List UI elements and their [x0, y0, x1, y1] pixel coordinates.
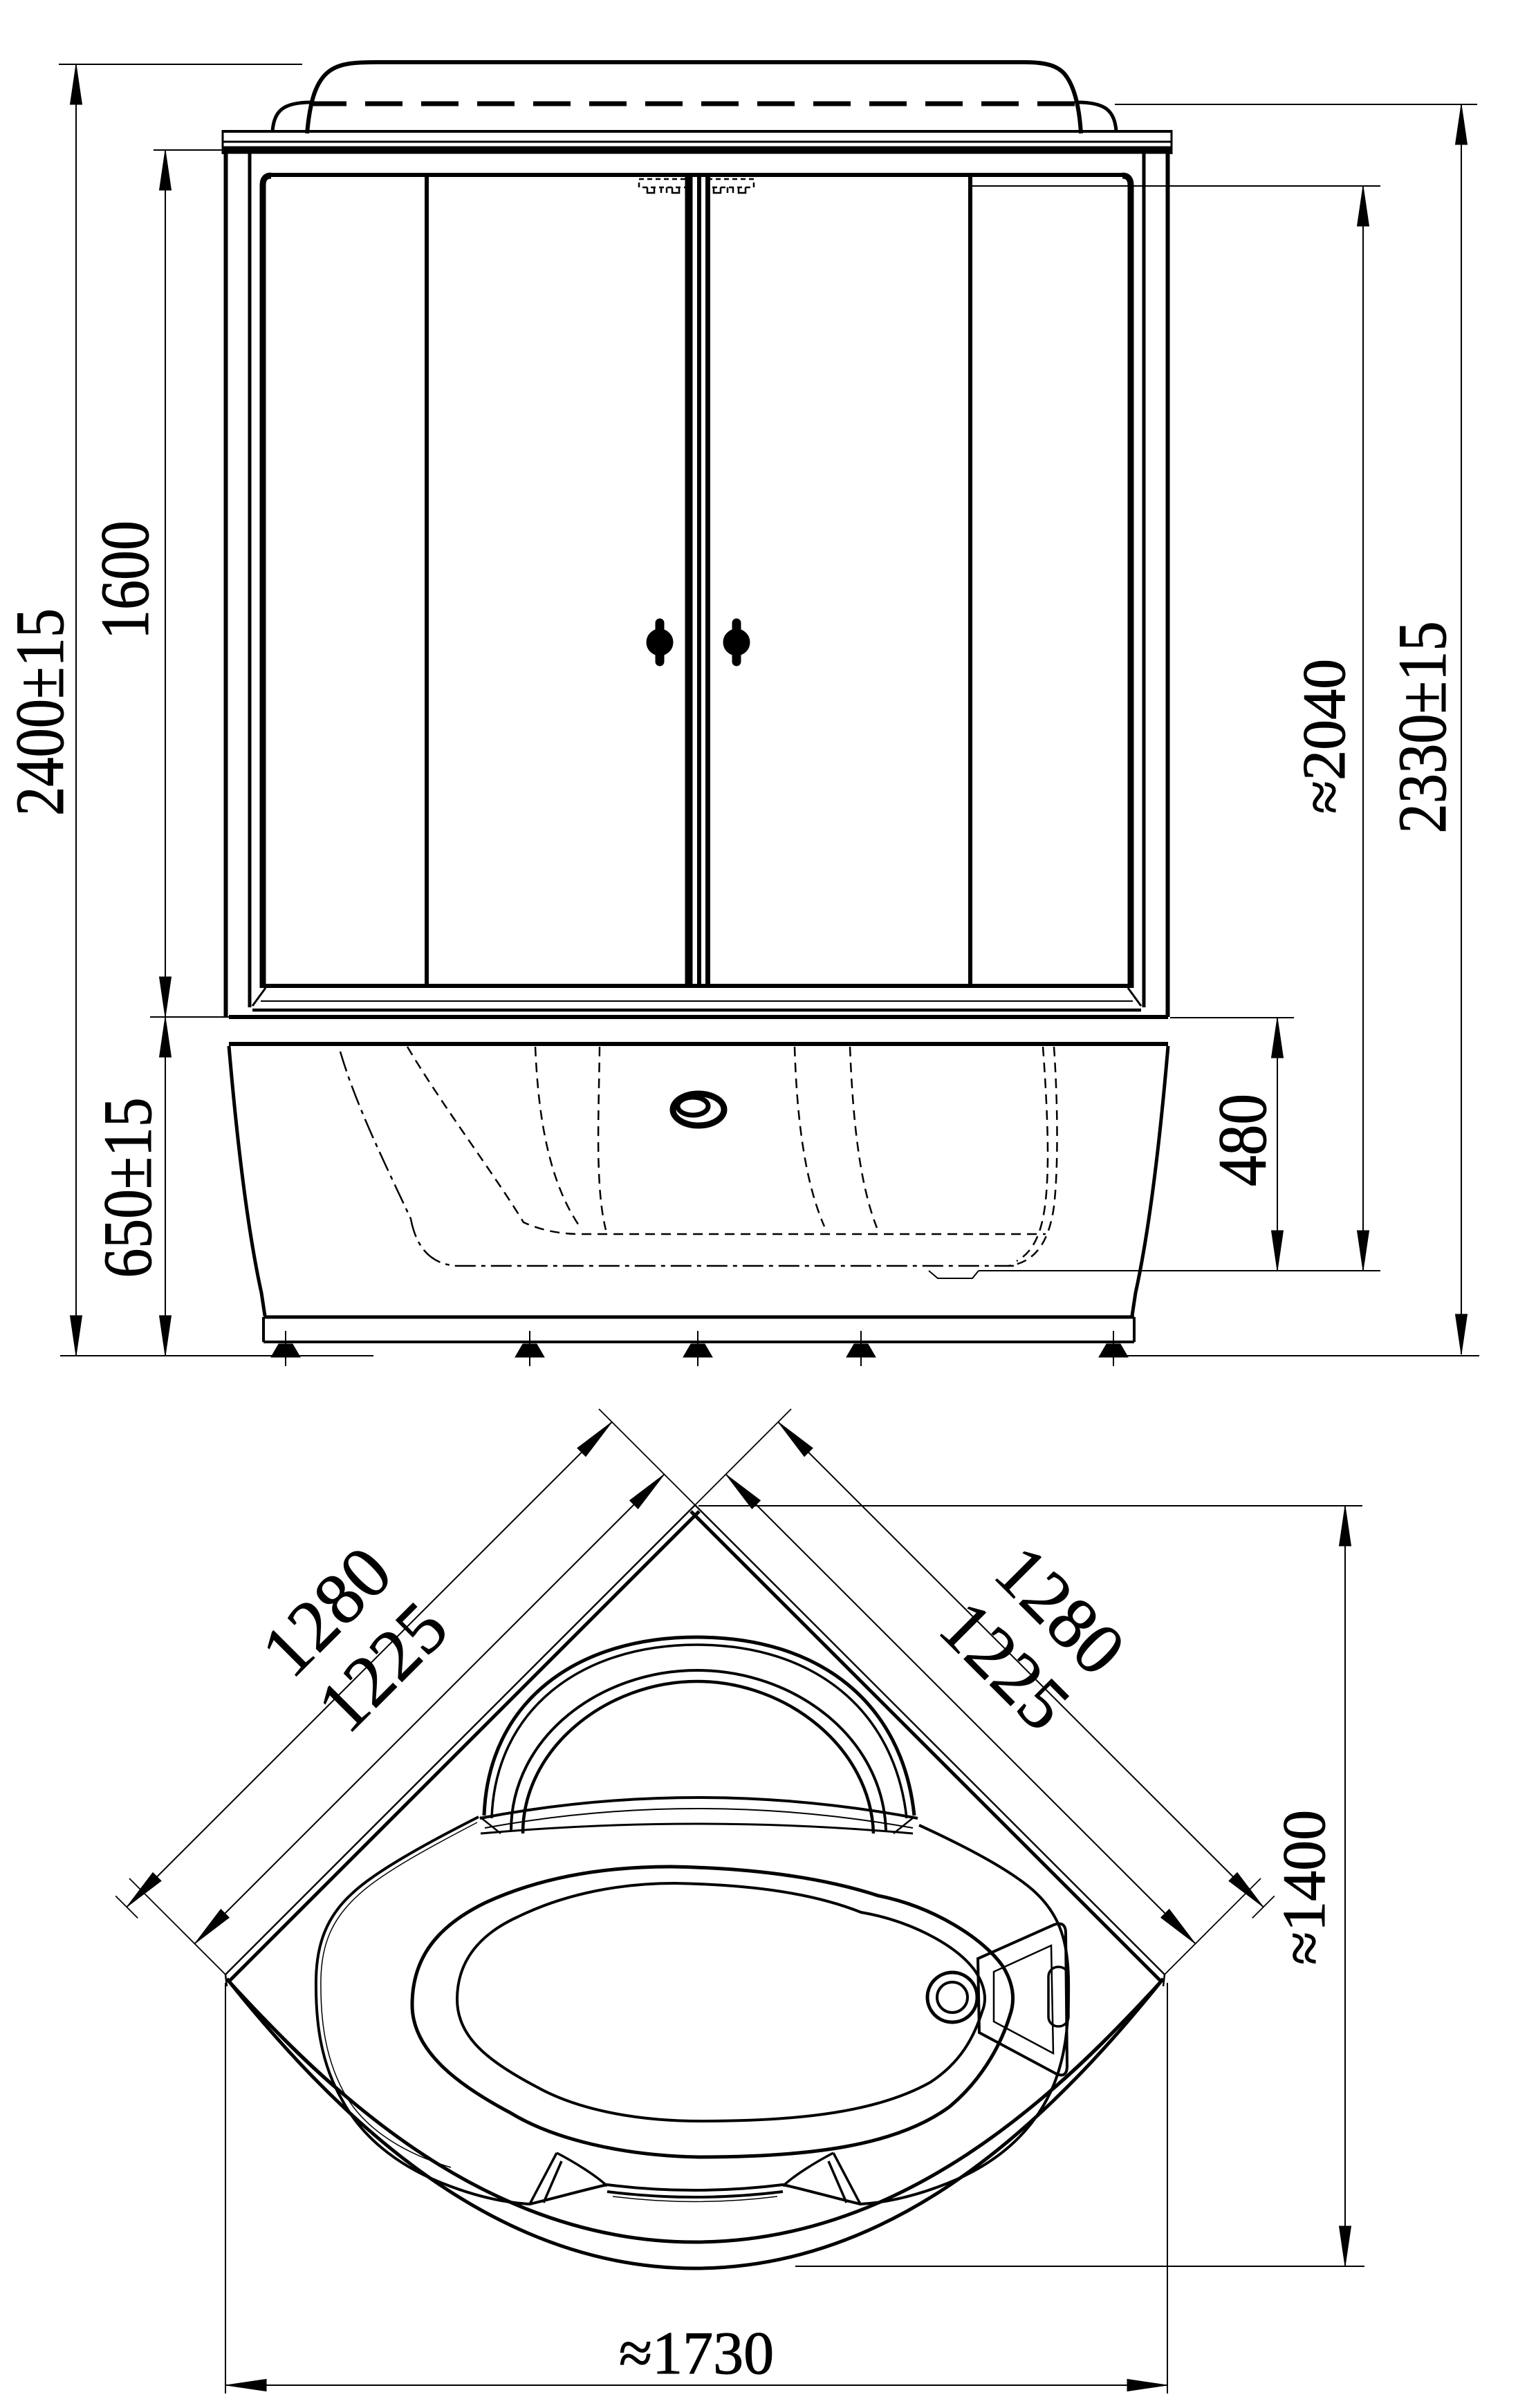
svg-text:≈1400: ≈1400 [1271, 1810, 1338, 1965]
svg-text:2400±15: 2400±15 [1, 608, 78, 816]
svg-text:1600: 1600 [86, 521, 163, 640]
svg-text:480: 480 [1204, 1094, 1281, 1186]
svg-text:≈1730: ≈1730 [619, 2320, 774, 2387]
svg-text:2330±15: 2330±15 [1384, 622, 1461, 834]
svg-text:≈2040: ≈2040 [1291, 659, 1358, 814]
svg-text:650±15: 650±15 [89, 1098, 166, 1278]
